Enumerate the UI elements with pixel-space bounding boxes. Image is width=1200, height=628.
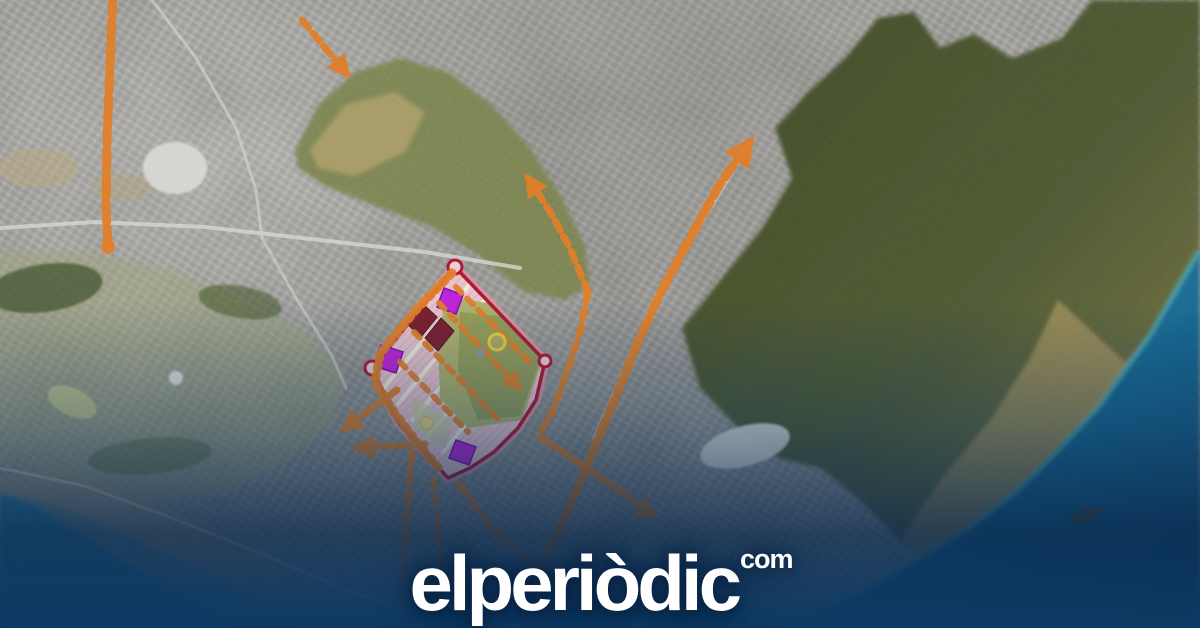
roundabout-ring-yellow <box>489 334 505 350</box>
route-arrow-northwest <box>302 20 347 74</box>
zone-corner-bump-3 <box>539 355 551 367</box>
map-canvas: elperiòdiccom <box>0 0 1200 628</box>
brand-name: elperiòdic <box>410 539 738 627</box>
plan-overlay-layer <box>0 0 1200 628</box>
route-end-dot <box>101 240 115 254</box>
roundabout-dot-yellow <box>421 417 433 429</box>
brand-tld: com <box>740 546 793 573</box>
utility-dot-gray <box>477 349 486 358</box>
brand-watermark: elperiòdiccom <box>0 544 1200 622</box>
route-north-avenue <box>106 0 113 244</box>
route-green-corridor-arrow <box>528 178 588 292</box>
